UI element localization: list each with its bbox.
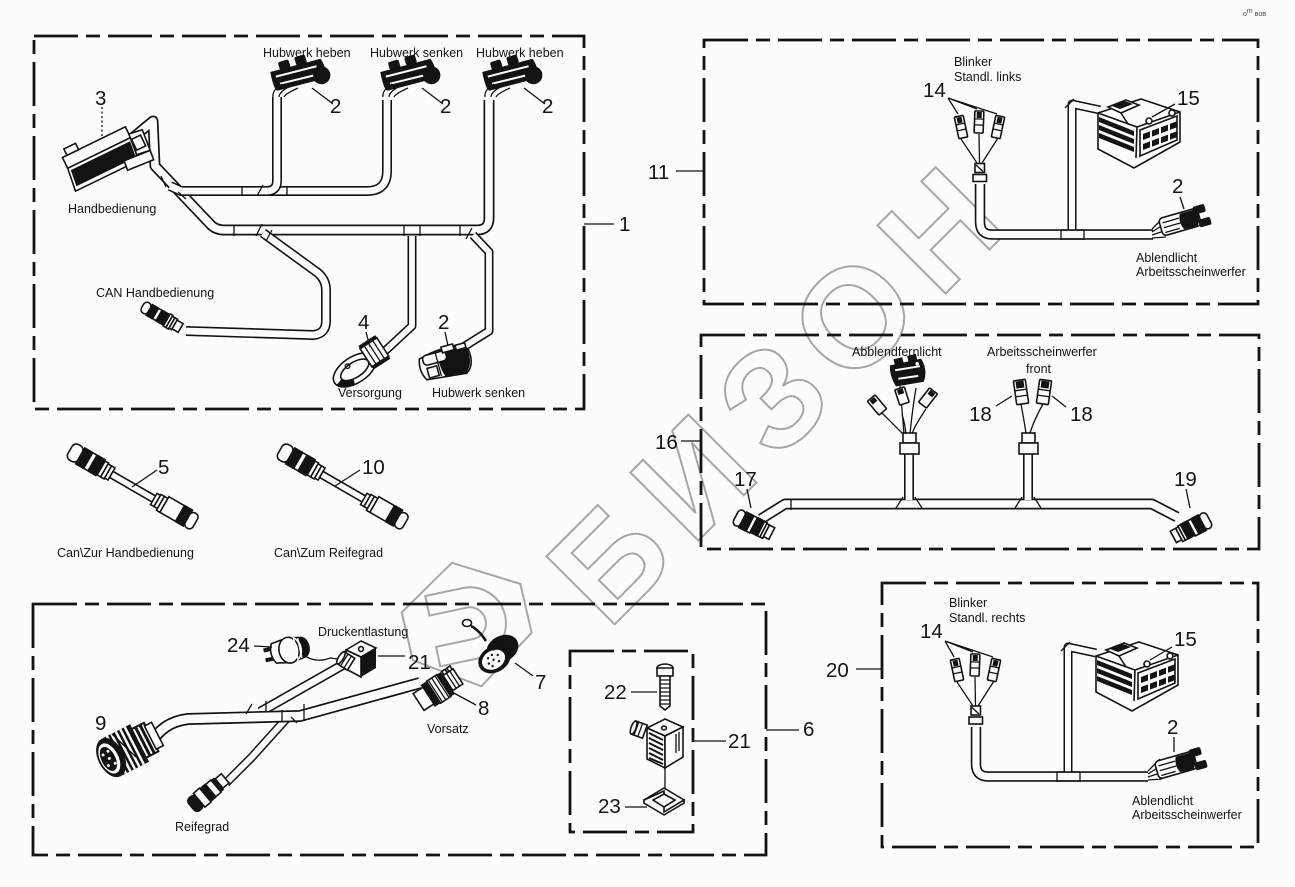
svg-text:Blinker: Blinker (949, 596, 987, 610)
svg-text:17: 17 (734, 468, 757, 491)
svg-text:5: 5 (158, 456, 169, 479)
svg-text:Standl. links: Standl. links (954, 70, 1021, 84)
svg-text:10: 10 (362, 456, 385, 479)
svg-text:Ablendlicht: Ablendlicht (1132, 794, 1194, 808)
svg-text:18: 18 (1070, 403, 1093, 426)
svg-text:Hubwerk senken: Hubwerk senken (370, 46, 463, 60)
svg-text:11: 11 (648, 161, 669, 184)
svg-text:Handbedienung: Handbedienung (68, 202, 156, 216)
svg-text:Hubwerk heben: Hubwerk heben (263, 46, 351, 60)
svg-text:4: 4 (358, 311, 369, 334)
svg-text:8: 8 (478, 697, 489, 720)
svg-text:Hubwerk senken: Hubwerk senken (432, 386, 525, 400)
svg-text:15: 15 (1177, 87, 1200, 110)
svg-text:7: 7 (535, 671, 546, 694)
svg-text:21: 21 (728, 730, 751, 753)
svg-text:Blinker: Blinker (954, 55, 992, 69)
svg-text:9: 9 (95, 712, 106, 735)
svg-text:15: 15 (1174, 628, 1197, 651)
svg-text:24: 24 (227, 634, 250, 657)
svg-text:6: 6 (803, 718, 814, 741)
svg-text:Can\Zum Reifegrad: Can\Zum Reifegrad (274, 546, 383, 560)
svg-text:2: 2 (440, 95, 451, 118)
svg-text:2: 2 (438, 311, 449, 334)
svg-text:2: 2 (1167, 716, 1178, 739)
svg-text:Hubwerk heben: Hubwerk heben (476, 46, 564, 60)
svg-text:20: 20 (826, 659, 849, 682)
svg-text:19: 19 (1174, 468, 1197, 491)
svg-text:Druckentlastung: Druckentlastung (318, 625, 408, 639)
svg-text:Can\Zur Handbedienung: Can\Zur Handbedienung (57, 546, 194, 560)
svg-text:Arbeitsscheinwerfer: Arbeitsscheinwerfer (1136, 265, 1246, 279)
svg-text:16: 16 (655, 431, 678, 454)
svg-text:Versorgung: Versorgung (338, 386, 402, 400)
svg-text:3: 3 (95, 87, 106, 110)
svg-text:front: front (1026, 362, 1052, 376)
svg-text:CAN Handbedienung: CAN Handbedienung (96, 286, 214, 300)
svg-text:Vorsatz: Vorsatz (427, 722, 469, 736)
svg-text:Standl. rechts: Standl. rechts (949, 611, 1025, 625)
svg-text:Arbeitsscheinwerfer: Arbeitsscheinwerfer (987, 345, 1097, 359)
svg-text:1: 1 (619, 213, 630, 236)
svg-text:18: 18 (969, 403, 992, 426)
svg-text:Reifegrad: Reifegrad (175, 820, 229, 834)
svg-text:14: 14 (920, 620, 943, 643)
svg-text:Ablendlicht: Ablendlicht (1136, 251, 1198, 265)
svg-text:21: 21 (408, 651, 431, 674)
svg-text:22: 22 (604, 681, 627, 704)
svg-text:Abblendfernlicht: Abblendfernlicht (852, 345, 942, 359)
svg-text:23: 23 (598, 795, 621, 818)
svg-text:Arbeitsscheinwerfer: Arbeitsscheinwerfer (1132, 808, 1242, 822)
svg-text:2: 2 (1172, 175, 1183, 198)
svg-text:14: 14 (923, 79, 946, 102)
svg-text:2: 2 (542, 95, 553, 118)
svg-text:2: 2 (330, 95, 341, 118)
